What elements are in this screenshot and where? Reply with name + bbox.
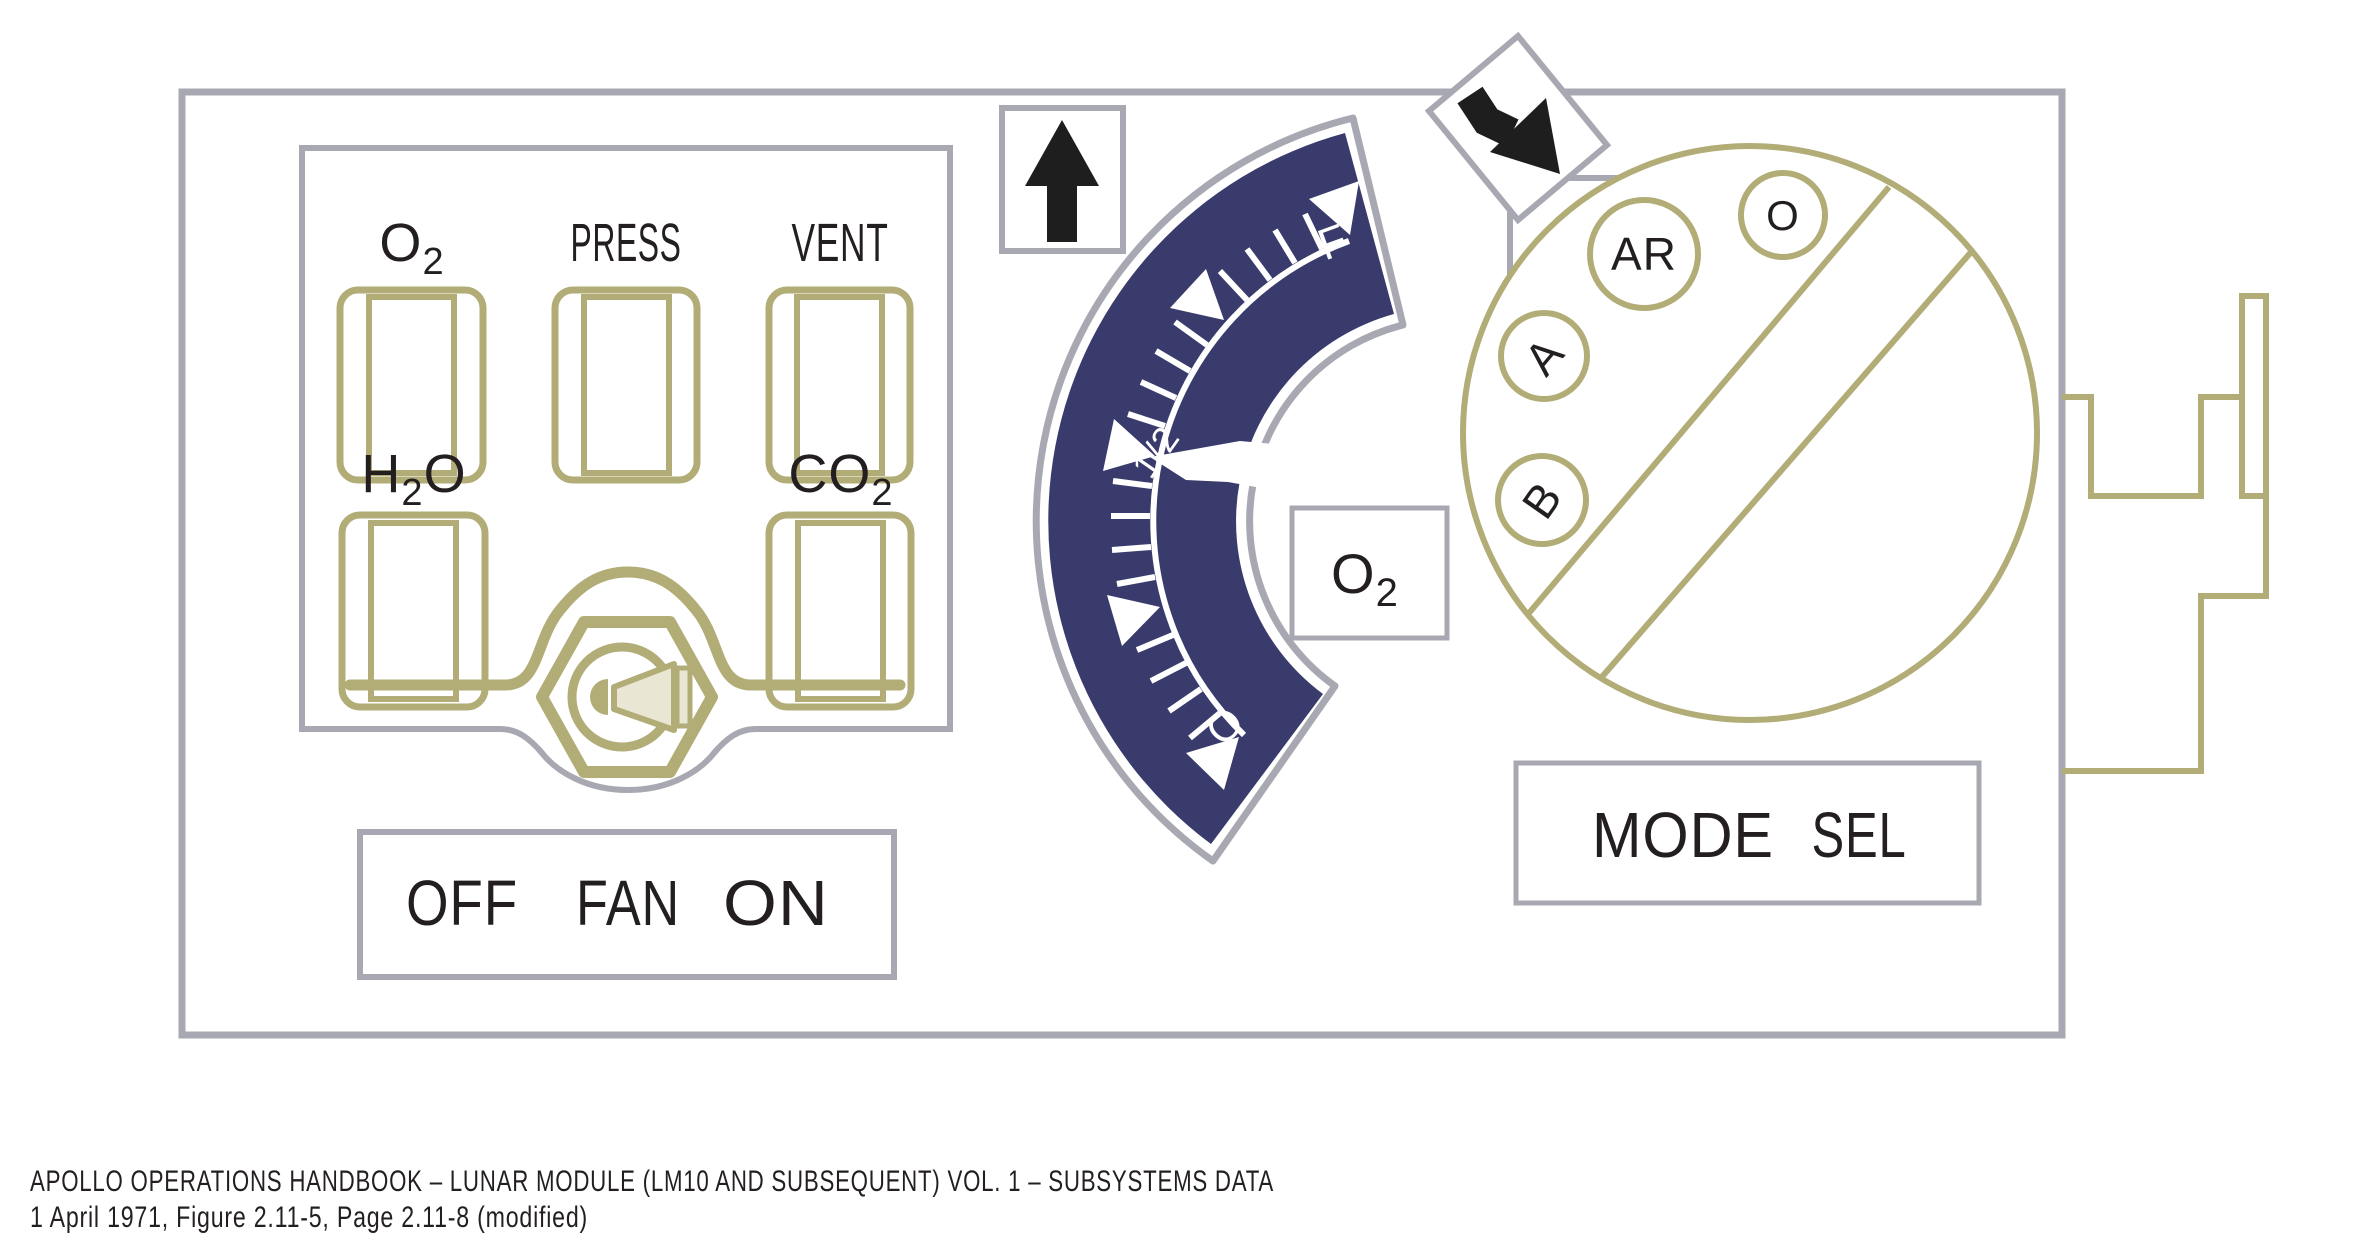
- fan-horn-flange-icon: [677, 668, 690, 726]
- fan-legend-fan: FAN: [576, 867, 680, 939]
- apollo-ecs-panel-figure: O2 PRESS VENT H2O CO2 OFF FAN ON: [0, 0, 2362, 1241]
- mode-sel-label-word1: MODE: [1592, 799, 1774, 871]
- mode-sel-label-word2: SEL: [1812, 799, 1907, 871]
- connector-bracket-bar: [2242, 296, 2266, 496]
- label-vent: VENT: [792, 213, 889, 273]
- caption-line1: APOLLO OPERATIONS HANDBOOK – LUNAR MODUL…: [30, 1165, 1274, 1198]
- fan-legend-off: OFF: [406, 867, 518, 939]
- connector-bracket: [2062, 296, 2266, 771]
- caption-line2: 1 April 1971, Figure 2.11-5, Page 2.11-8…: [30, 1201, 588, 1234]
- label-press: PRESS: [571, 213, 682, 273]
- dial-position-label-ar: AR: [1611, 228, 1677, 280]
- fan-legend-on: ON: [723, 867, 829, 939]
- connector-bracket-lower: [2062, 496, 2266, 771]
- panel-drawing: O2 PRESS VENT H2O CO2 OFF FAN ON: [0, 0, 2362, 1241]
- connector-bracket-upper: [2062, 397, 2242, 496]
- dial-position-label-o: O: [1766, 192, 1800, 239]
